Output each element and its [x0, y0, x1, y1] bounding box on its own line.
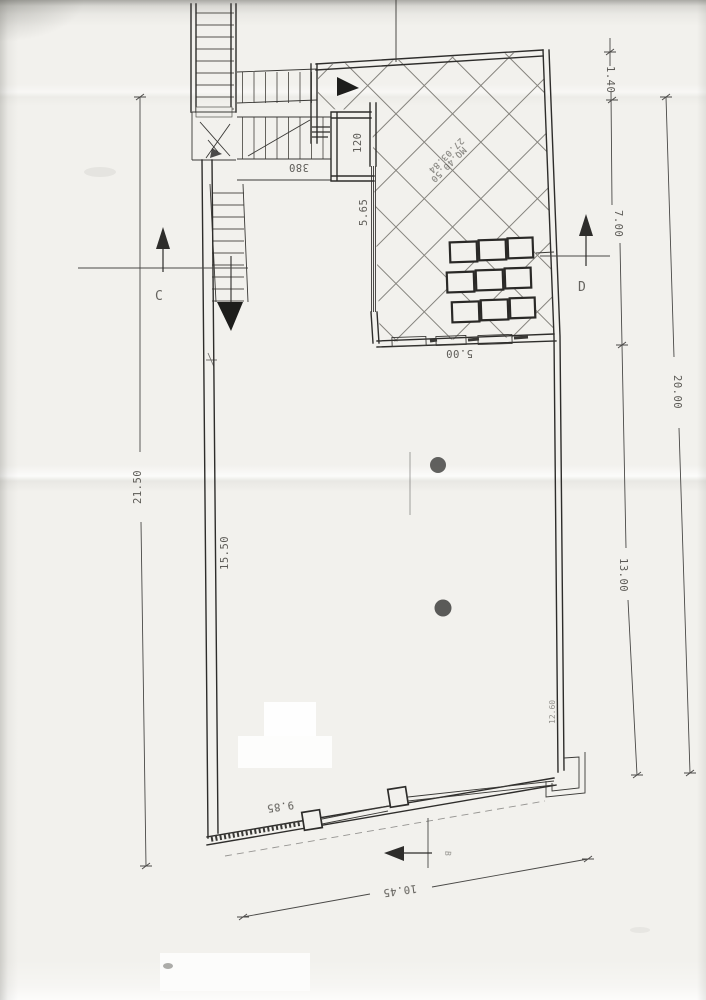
hall-bottom-wall: [207, 778, 556, 845]
dim-label-120: 120: [352, 133, 364, 153]
closet-120: 120: [331, 112, 374, 181]
bottom-windows: [322, 781, 554, 824]
smudge: [84, 167, 116, 177]
dim-label-7-00: 7.00: [612, 210, 624, 237]
scan-artifacts: [84, 167, 650, 991]
section-label-b: B: [443, 851, 452, 857]
corner-notch: [546, 752, 585, 797]
dim-label-9-85: 9.85: [266, 798, 295, 814]
pillar-post: [388, 787, 409, 808]
pillar-post: [302, 810, 323, 831]
brick-stack: [446, 237, 536, 322]
dim-label-1-40: 1.40: [604, 66, 616, 93]
stair-steps-top-run: [237, 72, 317, 103]
whiteout-patch: [238, 736, 332, 768]
smudge: [630, 927, 650, 933]
dim-label-12-60: 12.60: [548, 700, 557, 724]
stair-block: 380 120: [191, 4, 374, 367]
dim-label-10-45: 10.45: [382, 882, 417, 899]
whiteout-patch: [160, 953, 310, 991]
punch-hole: [435, 600, 452, 617]
floorplan-drawing: 27.03.84 MQ.40.50 380: [0, 0, 706, 1000]
smudge: [163, 963, 173, 969]
small-tick: [206, 353, 217, 367]
stair-steps-upper: [196, 4, 234, 110]
dim-bottom-10-45: 10.45: [237, 856, 594, 920]
scanned-floorplan-page: 27.03.84 MQ.40.50 380: [0, 0, 706, 1000]
dim-label-5-00: 5.00: [446, 347, 473, 359]
dim-label-13-00: 13.00: [617, 558, 629, 592]
dim-label-5-65: 5.65: [358, 199, 370, 226]
section-label-c: C: [155, 289, 163, 304]
stair-down-arrow-icon: [217, 302, 243, 331]
dim-right-inner: 1.40 7.00 13.00: [604, 38, 643, 778]
stair-steps-second-run: [237, 117, 331, 159]
dim-label-380: 380: [289, 161, 309, 173]
punch-hole: [430, 457, 446, 473]
dim-left-21-50: 21.50: [132, 94, 152, 869]
stair-steps-lower: [212, 184, 244, 302]
room-left-wall-lower: [371, 312, 379, 343]
dim-label-21-50: 21.50: [132, 470, 144, 504]
section-marker-b: B: [384, 818, 452, 868]
hatched-room: 27.03.84 MQ.40.50: [316, 0, 585, 797]
shaft-void-room: [192, 112, 236, 160]
section-label-d: D: [578, 280, 586, 295]
dim-label-15-50: 15.50: [219, 536, 231, 570]
dim-label-20-00: 20.00: [671, 375, 683, 409]
dim-right-outer: 20.00: [660, 94, 696, 776]
